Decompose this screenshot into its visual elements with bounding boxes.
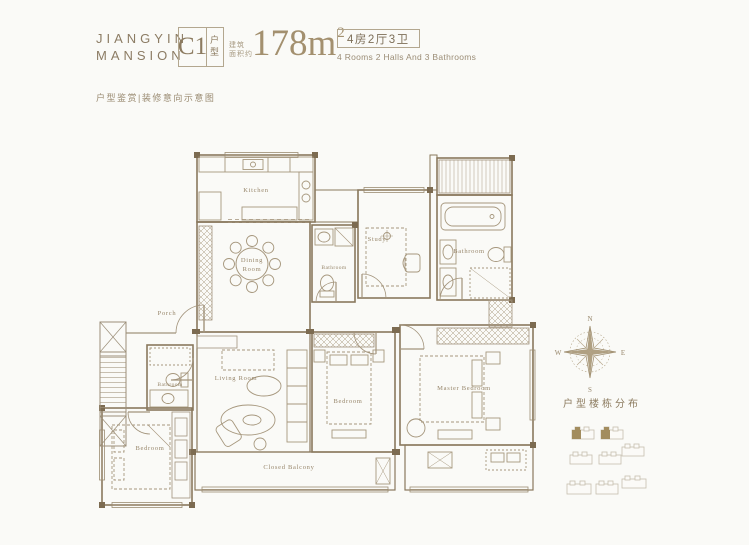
study-label: Study xyxy=(368,236,387,243)
bedroom-left-furniture xyxy=(112,425,170,489)
sink-icon xyxy=(443,245,453,259)
window-balcony-main xyxy=(202,487,388,492)
nightstand xyxy=(314,350,325,362)
bench xyxy=(438,430,472,439)
balcony-items xyxy=(376,450,526,484)
compass-icon: N S W E xyxy=(555,315,625,394)
porch-label: Porch xyxy=(158,310,177,317)
master-furniture xyxy=(407,352,500,439)
bench xyxy=(332,430,366,438)
closed-balcony-label: Closed Balcony xyxy=(263,464,314,471)
site-building xyxy=(622,476,646,488)
bedroom-middle-wardrobe xyxy=(314,334,374,347)
site-building-highlighted xyxy=(601,427,623,439)
toilet-icon xyxy=(321,275,334,291)
master-door xyxy=(400,325,424,349)
armchair xyxy=(215,418,243,448)
stove-icon xyxy=(302,181,310,189)
compass-s: S xyxy=(588,386,592,394)
nightstand xyxy=(486,352,500,364)
kitchen-sink-icon xyxy=(243,160,263,170)
bedroom-middle-label: Bedroom xyxy=(333,398,362,405)
bath-left-label: Bathroom xyxy=(157,382,183,388)
bedroom-left-walls xyxy=(102,408,192,505)
furniture xyxy=(112,157,526,489)
site-building xyxy=(599,452,621,464)
building-core xyxy=(100,322,126,446)
kitchen-label: Kitchen xyxy=(243,187,269,194)
living-label: Living Room xyxy=(215,375,258,382)
master-wardrobe xyxy=(437,328,529,344)
sink-icon xyxy=(162,394,174,404)
window-balcony-master xyxy=(410,487,528,492)
nightstand xyxy=(373,350,384,362)
closet-topright xyxy=(439,160,510,193)
floor-plan-canvas: Kitchen Dining Room Study Bathroom Bathr… xyxy=(0,0,749,545)
stairs-icon xyxy=(100,356,126,412)
living-furniture xyxy=(215,350,307,450)
site-plan-title: 户型楼栋分布 xyxy=(563,397,641,410)
wall-step xyxy=(430,155,437,190)
elevator-icon xyxy=(100,416,126,446)
balcony-main-walls xyxy=(195,452,395,490)
nightstand xyxy=(486,418,500,430)
wardrobes xyxy=(172,160,529,498)
dining-label-line1: Dining xyxy=(241,257,263,264)
site-building-highlighted xyxy=(572,427,594,439)
site-plan xyxy=(567,427,646,494)
bath-middle-label: Bathroom xyxy=(321,265,347,271)
sink-icon xyxy=(318,232,330,242)
site-building xyxy=(567,481,591,494)
bath-middle-fixtures xyxy=(315,228,353,297)
dining-label-line2: Room xyxy=(243,266,262,273)
toilet-icon xyxy=(488,248,504,262)
compass-e: E xyxy=(621,349,625,357)
side-table xyxy=(254,438,266,450)
compass-n: N xyxy=(587,315,592,323)
doors xyxy=(128,220,462,435)
bedroom-left-door xyxy=(128,412,150,434)
sofa xyxy=(287,350,307,442)
dining-cabinet xyxy=(199,226,212,320)
tv-console xyxy=(222,350,274,370)
site-building xyxy=(596,481,618,494)
chair xyxy=(405,254,420,272)
master-wardrobe-side xyxy=(489,300,512,327)
elevator-icon xyxy=(100,322,126,352)
window-master-right xyxy=(530,350,535,420)
compass-w: W xyxy=(555,349,562,357)
bath-left-walls xyxy=(147,345,193,410)
bed xyxy=(112,425,170,489)
bed xyxy=(327,352,371,424)
window-bedroom-left-bottom xyxy=(112,503,182,508)
armchair xyxy=(407,419,425,437)
bedroom-middle-furniture xyxy=(314,350,384,438)
study-walls xyxy=(358,190,430,298)
bath-left-fixtures xyxy=(150,348,190,407)
balcony-master-walls xyxy=(405,445,533,490)
floorplan-poster: JIANGYIN MANSION C1 户型 建筑 面积约 178m2 4房2厅… xyxy=(0,0,749,545)
hall-cabinet xyxy=(197,336,237,348)
bath-topright-label: Bathroom xyxy=(453,248,485,255)
master-bedroom-label: Master Bedroom xyxy=(437,385,491,392)
shower-icon xyxy=(150,348,190,365)
bedroom-left-label: Bedroom xyxy=(135,445,164,452)
site-building xyxy=(570,452,592,464)
window-study-top xyxy=(364,188,424,193)
site-building xyxy=(622,444,644,456)
dining-table xyxy=(224,236,281,293)
